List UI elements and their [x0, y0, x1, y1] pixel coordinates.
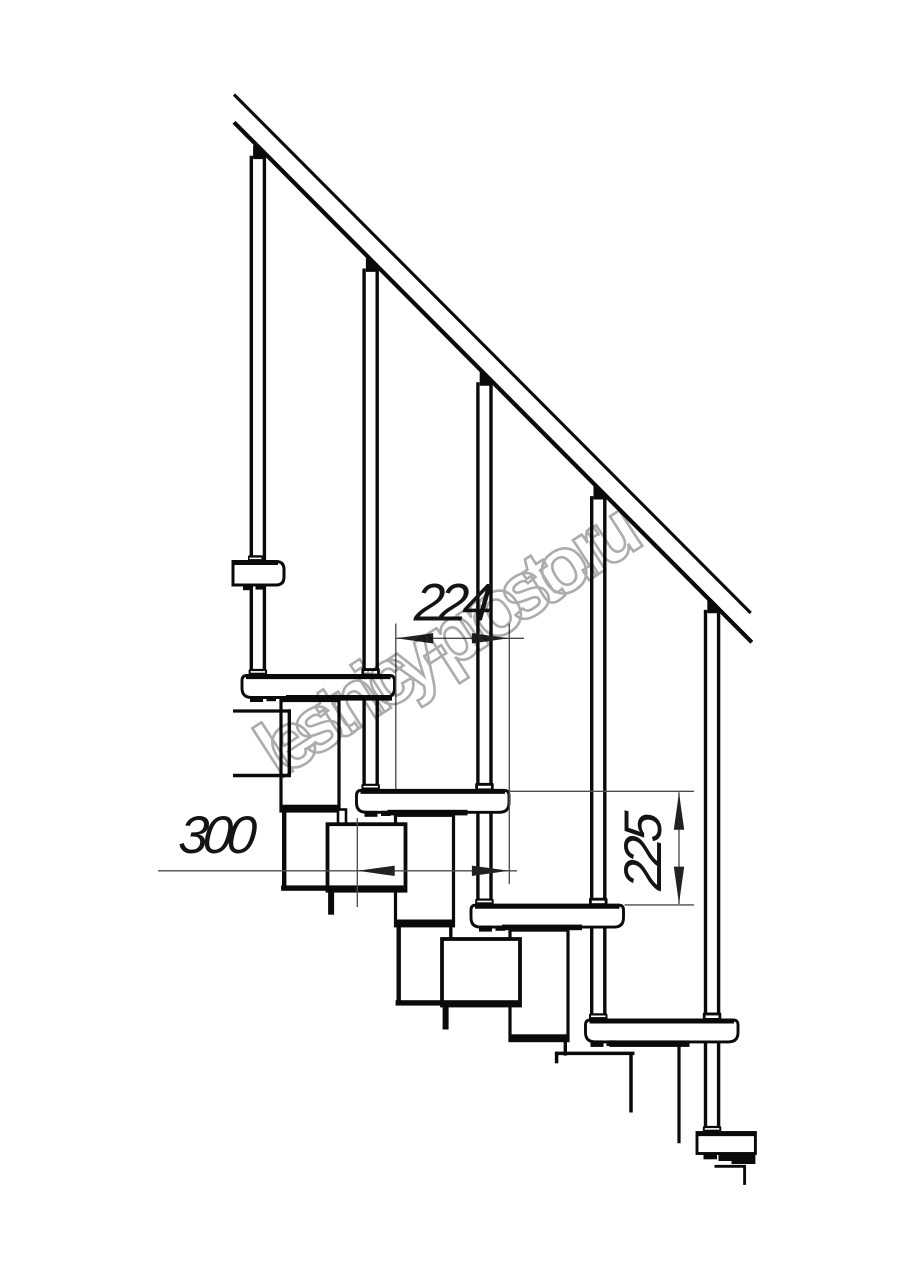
svg-text:300: 300: [176, 806, 259, 865]
svg-text:225: 225: [614, 809, 673, 893]
